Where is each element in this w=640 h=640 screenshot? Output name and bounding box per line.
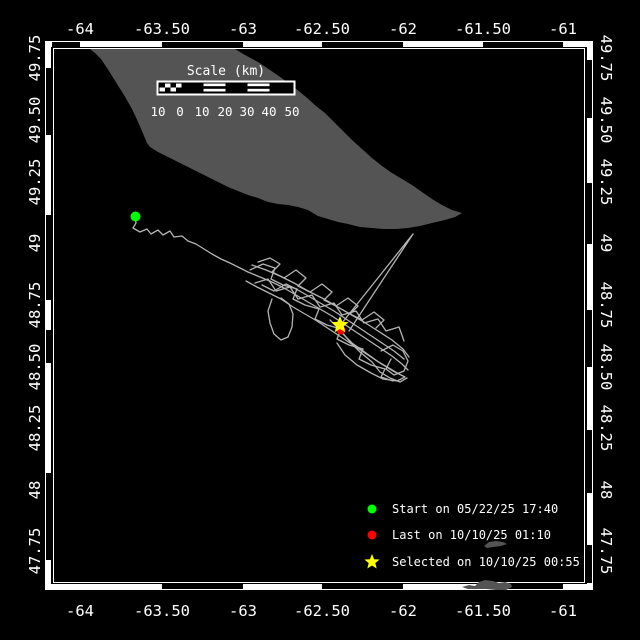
scale-bar-label: 40	[261, 104, 276, 119]
lon-tick-label-top: -63	[229, 20, 257, 38]
legend-marker-start	[368, 505, 377, 514]
scale-bar-label: 30	[239, 104, 254, 119]
scale-check-cell	[171, 84, 177, 88]
lat-tick-label-right: 49.75	[597, 35, 615, 82]
lon-tick-label-top: -62.50	[294, 20, 350, 38]
lat-tick-label-left: 47.75	[26, 528, 44, 575]
frame-dash	[587, 183, 592, 244]
legend-marker-last	[368, 531, 377, 540]
lat-tick-label-left: 49.50	[26, 97, 44, 144]
legend-label: Start on 05/22/25 17:40	[392, 502, 558, 516]
lon-tick-label-bottom: -61	[549, 602, 577, 620]
frame-dash	[587, 60, 592, 118]
lon-tick-label-bottom: -63	[229, 602, 257, 620]
frame-dash	[162, 584, 243, 589]
lon-tick-label-bottom: -62	[389, 602, 417, 620]
lon-tick-label-top: -61.50	[455, 20, 511, 38]
scale-bar-label: 20	[217, 104, 232, 119]
scale-bar-title: Scale (km)	[187, 64, 265, 79]
scale-bar-label: 0	[176, 104, 184, 119]
frame-dash	[322, 584, 403, 589]
lat-tick-label-left: 49	[26, 234, 44, 253]
lat-tick-label-right: 47.75	[597, 528, 615, 575]
lat-tick-label-right: 49.50	[597, 97, 615, 144]
scale-bar-label: 10	[150, 104, 165, 119]
frame-dash	[46, 68, 51, 135]
frame-dash	[52, 42, 80, 47]
lat-tick-label-left: 48	[26, 481, 44, 500]
lon-tick-label-bottom: -64	[66, 602, 94, 620]
legend-label: Selected on 10/10/25 00:55	[392, 555, 580, 569]
lon-tick-label-top: -62	[389, 20, 417, 38]
frame-dash	[587, 430, 592, 493]
lat-tick-label-right: 48.75	[597, 282, 615, 329]
scale-bar-label: 50	[284, 104, 299, 119]
lon-tick-label-bottom: -63.50	[134, 602, 190, 620]
scale-stripe-line	[248, 86, 270, 89]
frame-dash	[162, 42, 243, 47]
lat-tick-label-left: 49.75	[26, 35, 44, 82]
lat-tick-label-right: 48	[597, 481, 615, 500]
frame-dash	[46, 330, 51, 363]
legend: Start on 05/22/25 17:40Last on 10/10/25 …	[364, 502, 579, 569]
lon-tick-label-top: -64	[66, 20, 94, 38]
scale-check-cell	[160, 84, 166, 88]
lon-tick-label-bottom: -62.50	[294, 602, 350, 620]
map-window: Scale (km)1001020304050 -64-64-63.50-63.…	[0, 0, 640, 640]
lat-tick-label-right: 48.50	[597, 344, 615, 391]
lat-tick-label-left: 49.25	[26, 159, 44, 206]
frame-dash	[587, 545, 592, 583]
map-background	[0, 0, 640, 640]
legend-label: Last on 10/10/25 01:10	[392, 528, 551, 542]
scale-check-cell	[176, 88, 182, 92]
frame-dash	[46, 215, 51, 300]
tracking-map: Scale (km)1001020304050 -64-64-63.50-63.…	[0, 0, 640, 640]
lat-tick-label-right: 48.25	[597, 405, 615, 452]
lat-tick-label-right: 49.25	[597, 159, 615, 206]
scale-bar-label: 10	[194, 104, 209, 119]
lon-tick-label-bottom: -61.50	[455, 602, 511, 620]
lat-tick-label-right: 49	[597, 234, 615, 253]
lon-tick-label-top: -63.50	[134, 20, 190, 38]
lat-tick-label-left: 48.25	[26, 405, 44, 452]
scale-check-cell	[165, 88, 171, 92]
lat-tick-label-left: 48.50	[26, 344, 44, 391]
start-marker[interactable]	[131, 212, 141, 222]
scale-stripe-line	[204, 86, 226, 89]
frame-dash	[483, 42, 563, 47]
frame-dash	[587, 310, 592, 367]
frame-dash	[46, 473, 51, 560]
frame-dash	[322, 42, 403, 47]
lon-tick-label-top: -61	[549, 20, 577, 38]
lat-tick-label-left: 48.75	[26, 282, 44, 329]
